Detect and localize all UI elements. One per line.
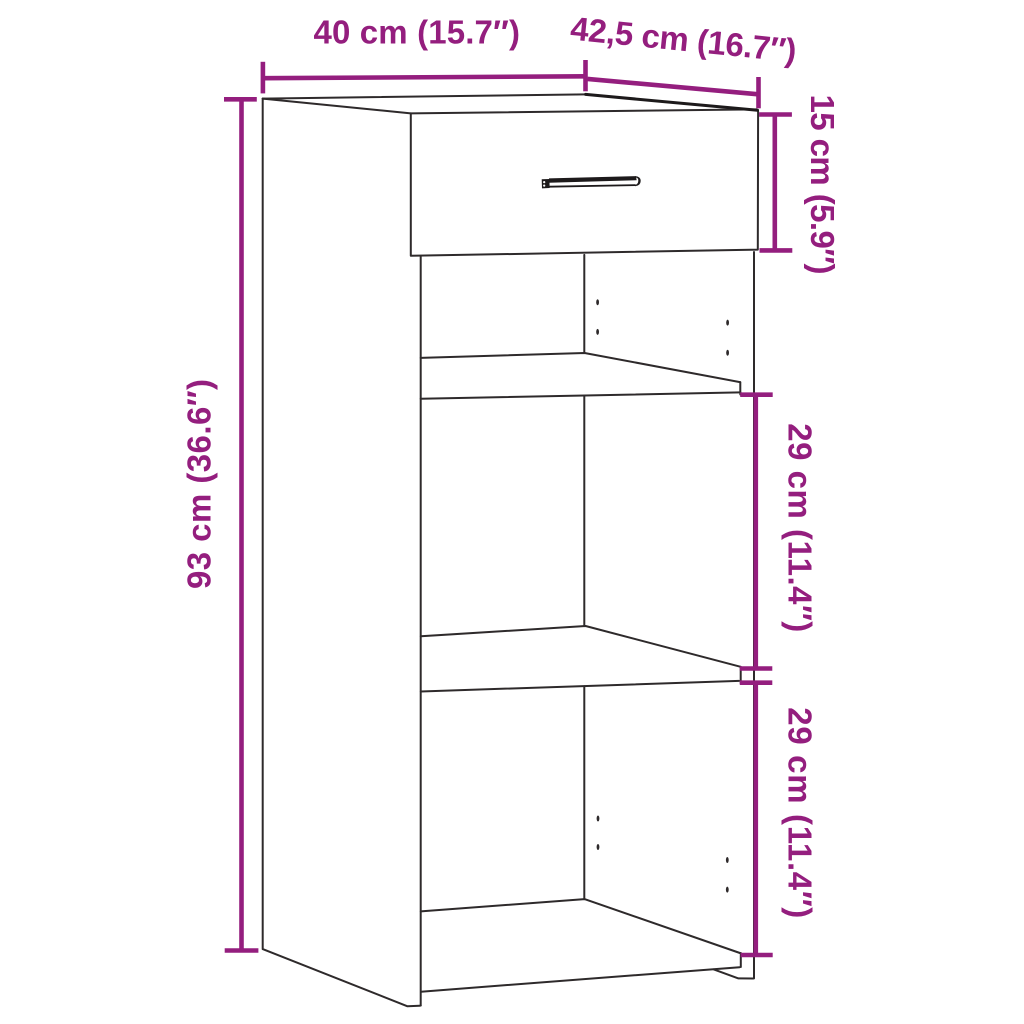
svg-text:93 cm (36.6″): 93 cm (36.6″) bbox=[181, 379, 218, 589]
svg-text:40 cm (15.7″): 40 cm (15.7″) bbox=[314, 14, 521, 51]
svg-text:29 cm (11.4″): 29 cm (11.4″) bbox=[782, 423, 819, 632]
svg-text:15 cm (5.9″): 15 cm (5.9″) bbox=[804, 95, 841, 275]
svg-text:29 cm (11.4″): 29 cm (11.4″) bbox=[782, 707, 819, 918]
